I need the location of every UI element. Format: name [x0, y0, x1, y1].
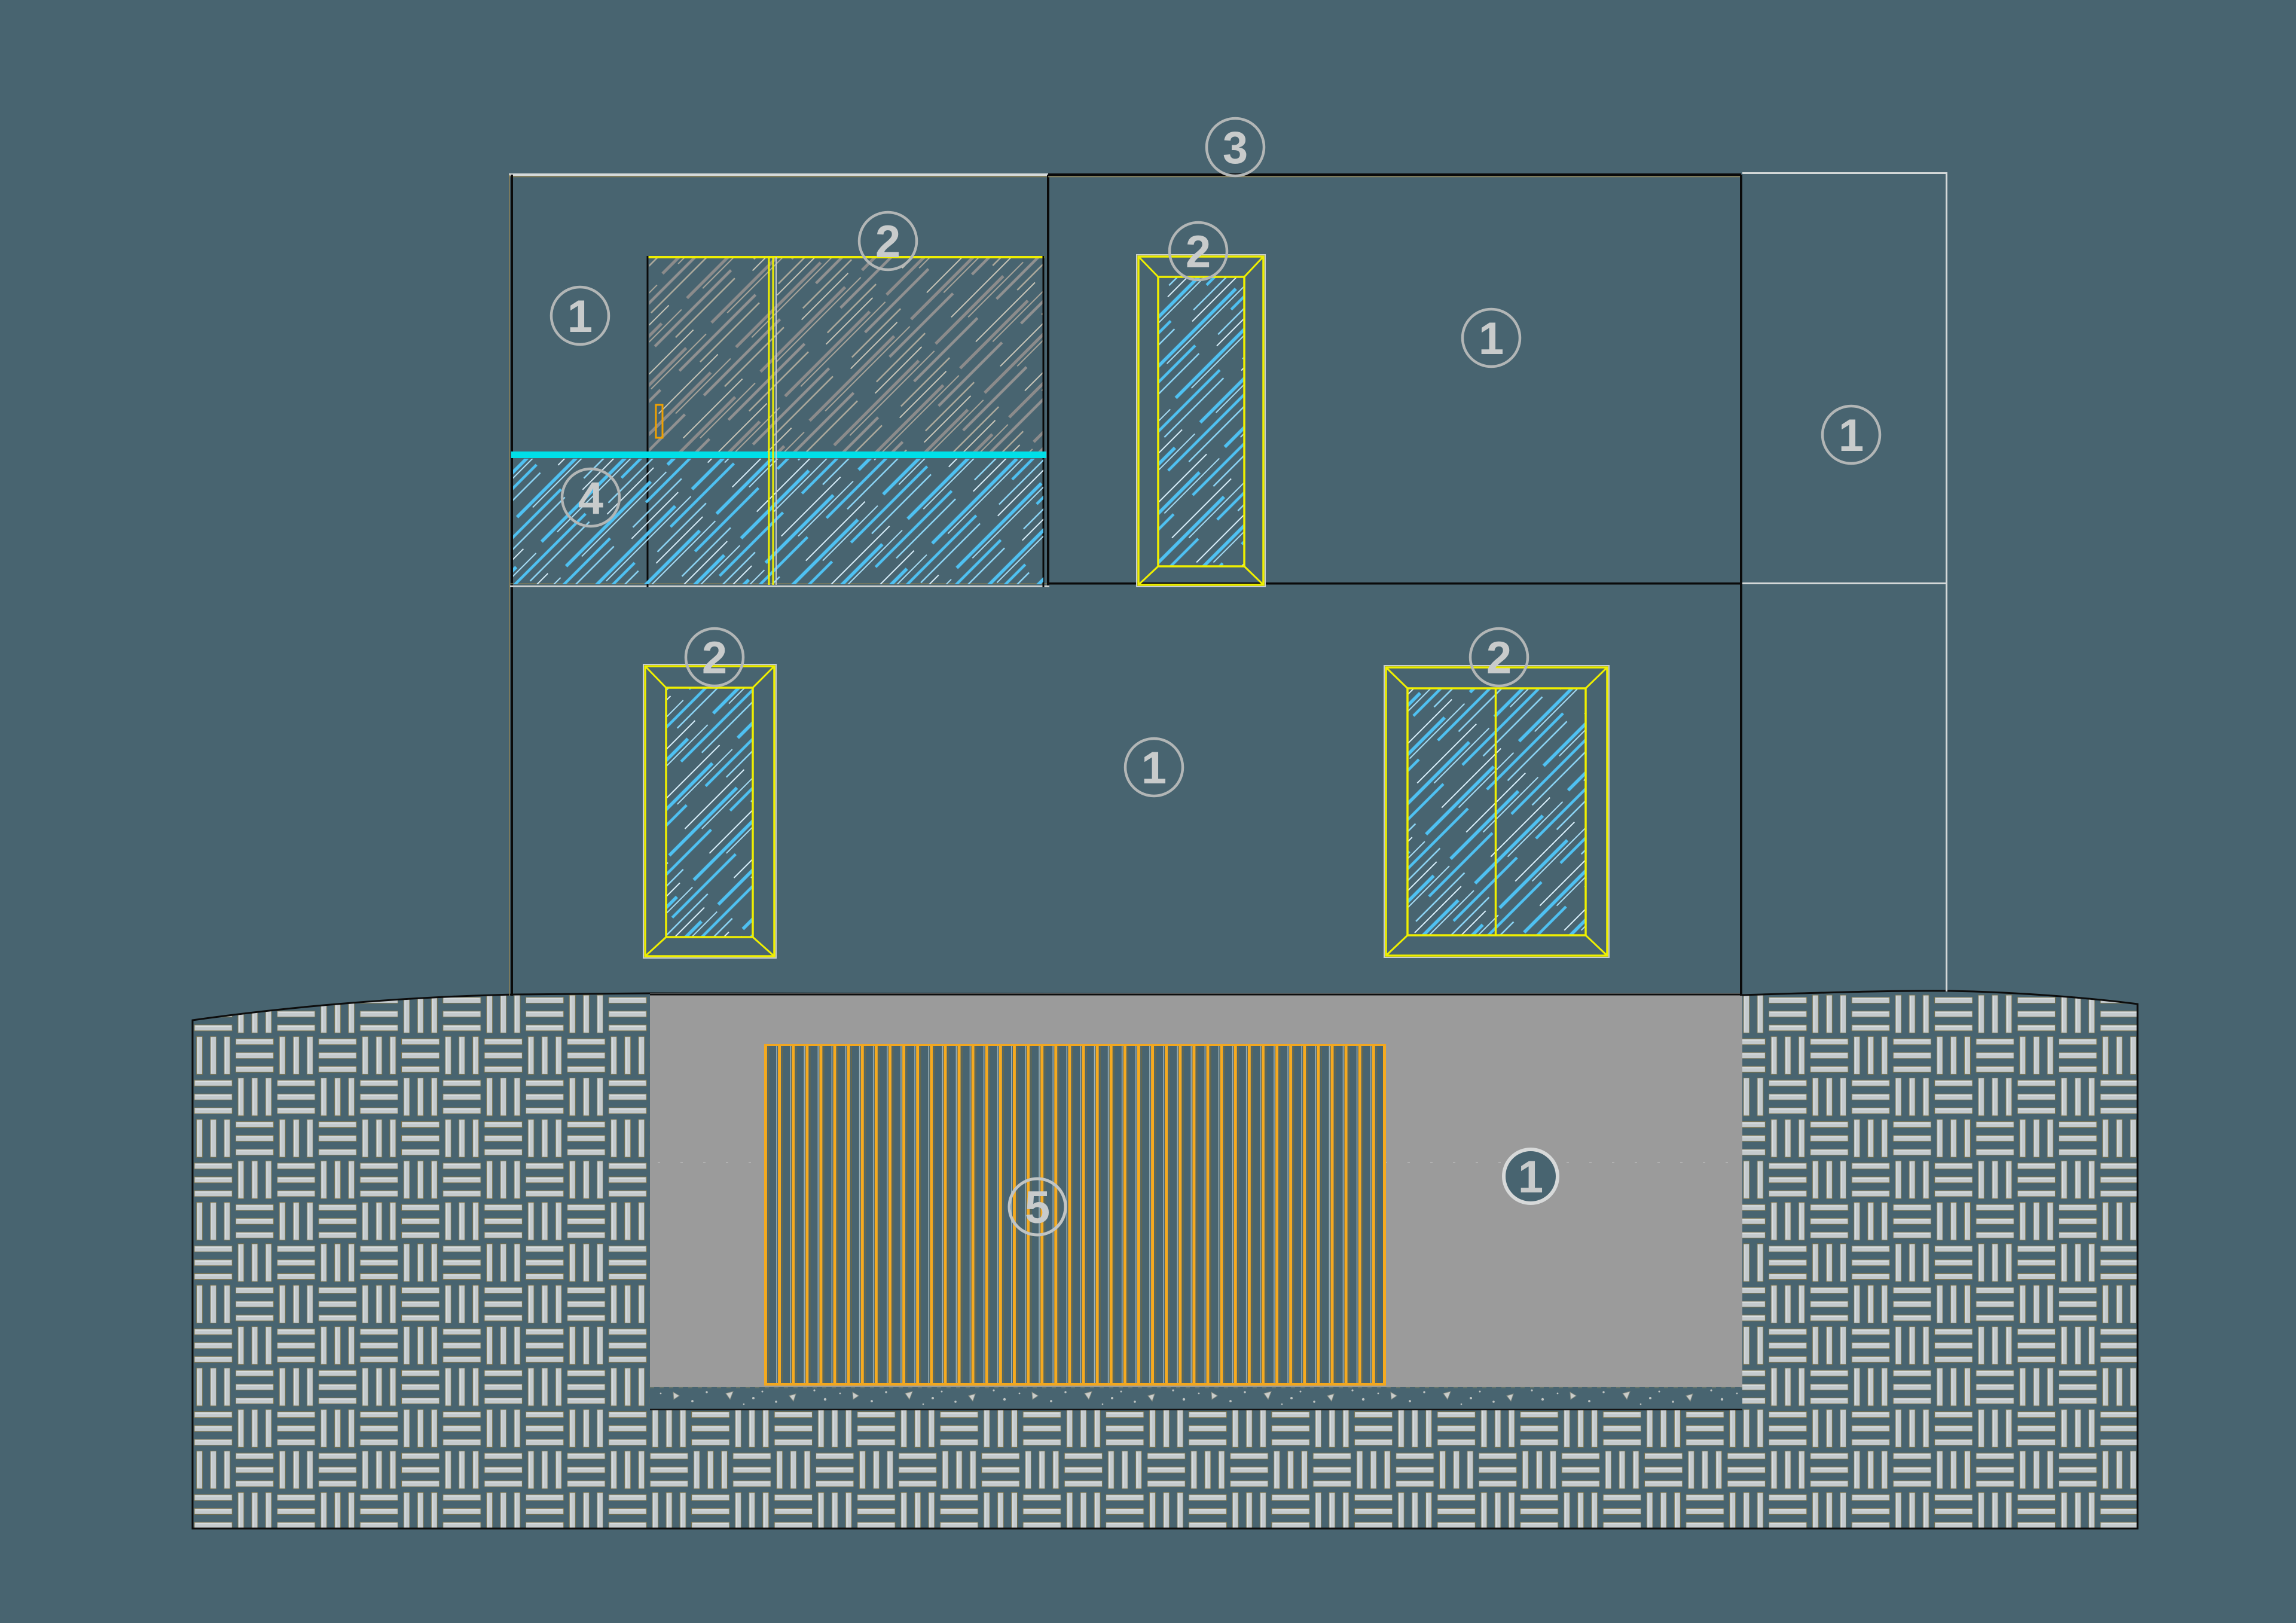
svg-text:5: 5	[1025, 1182, 1050, 1233]
svg-text:3: 3	[1223, 123, 1248, 173]
svg-text:1: 1	[1839, 410, 1864, 461]
svg-text:1: 1	[567, 291, 593, 342]
svg-text:2: 2	[1186, 227, 1211, 277]
svg-text:1: 1	[1141, 743, 1167, 794]
svg-text:1: 1	[1518, 1152, 1543, 1203]
svg-text:2: 2	[1486, 633, 1512, 684]
svg-text:4: 4	[578, 473, 603, 524]
svg-text:1: 1	[1479, 313, 1504, 364]
svg-text:2: 2	[702, 633, 727, 684]
svg-text:2: 2	[875, 216, 900, 267]
